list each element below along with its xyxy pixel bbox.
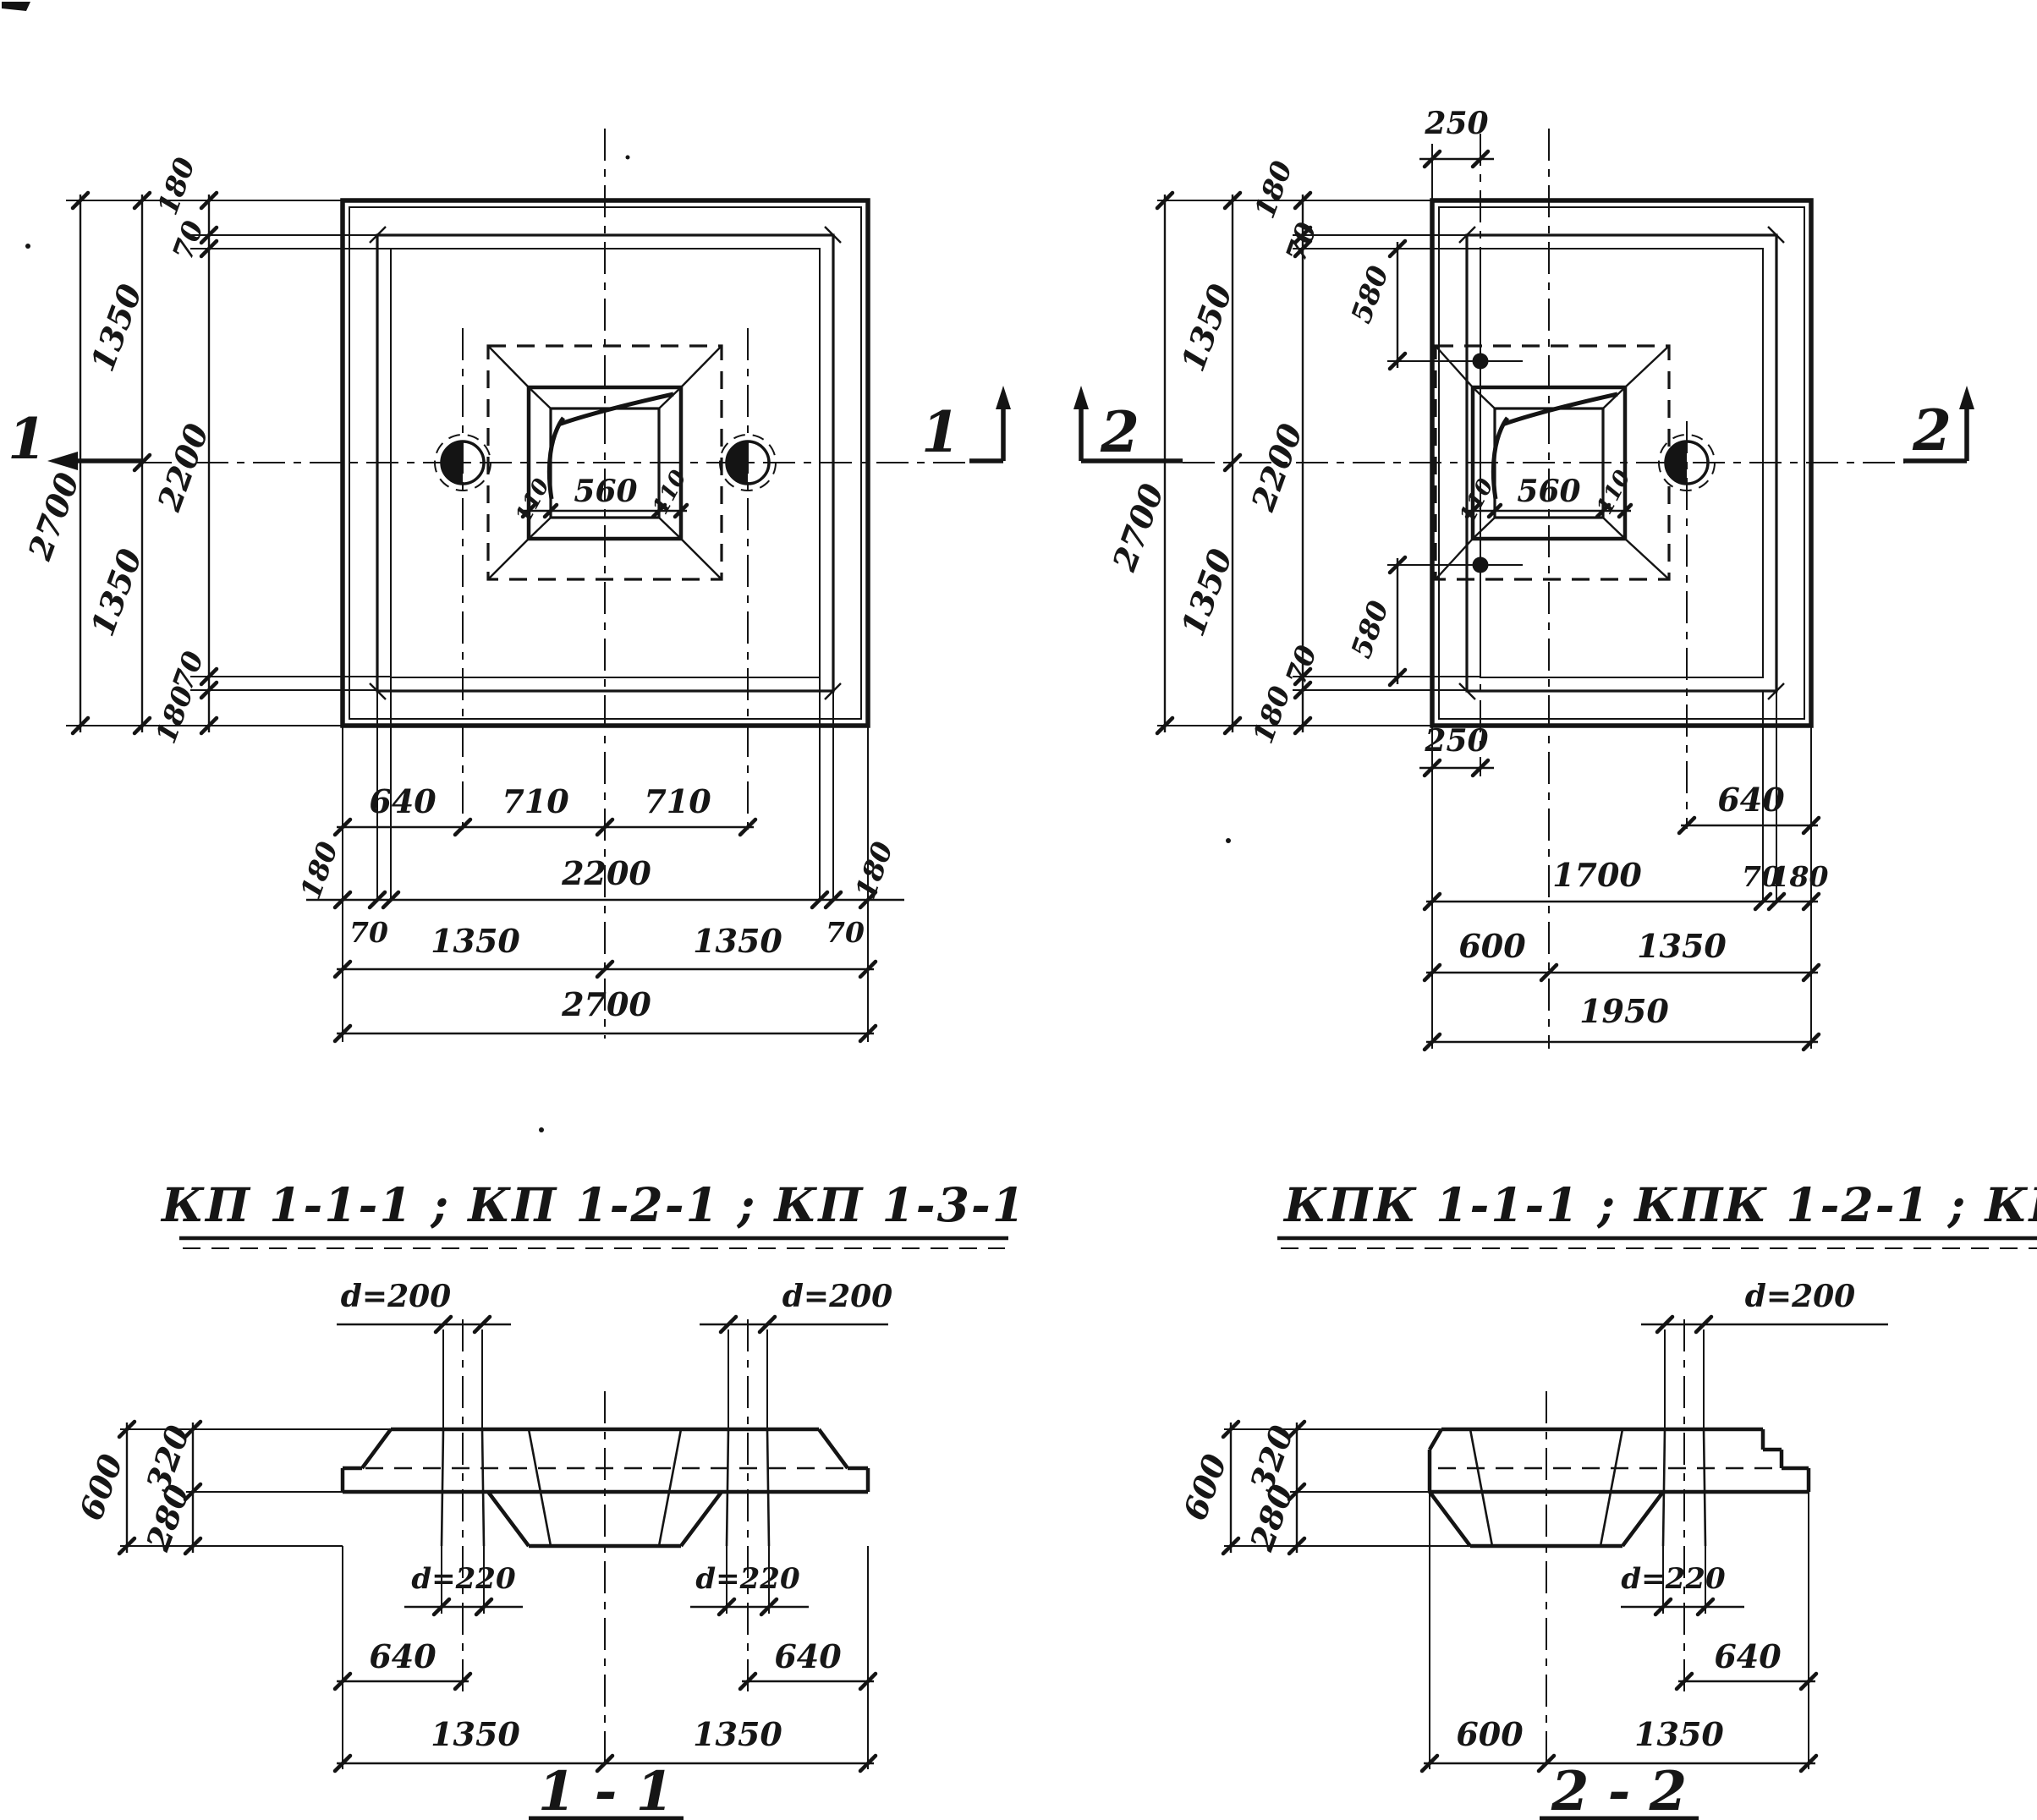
plan-right-dimension-ticks — [1157, 151, 1819, 1050]
section2-pocket-and-pipe — [1470, 1429, 1705, 1546]
dim-left-total-v: 2700 — [20, 467, 87, 565]
section-2-2: d=200 600 320 280 d=220 640 600 1350 2 -… — [1176, 1279, 1888, 1820]
dim-right-edge-top: 180 — [1248, 156, 1299, 222]
section1-640-right: 640 — [774, 1637, 842, 1675]
dim-left-h-total: 2700 — [561, 985, 651, 1023]
dim-right-1950: 1950 — [1579, 992, 1669, 1030]
section1-d200-left: d=200 — [341, 1279, 451, 1314]
section1-ticks — [119, 1317, 876, 1771]
title-left: КП 1-1-1 ; КП 1-2-1 ; КП 1-3-1 — [160, 1177, 1026, 1232]
dim-left-h-edge-right: 180 — [848, 837, 899, 903]
corner-smudge — [2, 2, 30, 11]
dim-left-inner-v: 2200 — [150, 418, 217, 516]
section2-ticks — [1223, 1317, 1816, 1771]
section2-arrow-east — [1959, 386, 1974, 409]
dim-left-h-inner: 2200 — [561, 854, 651, 892]
plan-right-extension-lines — [1157, 144, 1811, 1049]
dim-left-h-step-right: 70 — [826, 916, 865, 949]
dim-left-h-half-right: 1350 — [693, 922, 782, 960]
section1-arrow-east — [996, 386, 1011, 409]
plan-right: 2 2 250 250 2700 1350 1350 2200 180 70 5… — [1073, 106, 1974, 1050]
section1-label-east: 1 — [921, 399, 960, 465]
dim-left-hole-offset: 640 — [369, 782, 436, 820]
section1-d220-left: d=220 — [411, 1562, 516, 1596]
dim-right-1350: 1350 — [1637, 927, 1727, 965]
section1-280: 280 — [138, 1479, 197, 1556]
section2-extension-lines — [1224, 1329, 1809, 1769]
section2-600b: 600 — [1456, 1715, 1524, 1753]
dim-right-inner-v: 2200 — [1244, 418, 1310, 516]
dim-left-710a: 710 — [502, 782, 569, 820]
section2-label-east: 2 — [1912, 397, 1952, 463]
section2-d220: d=220 — [1621, 1562, 1726, 1596]
dim-left-h-step-left: 70 — [349, 916, 388, 949]
section1-extension-lines — [120, 1329, 868, 1769]
dim-left-half-bottom: 1350 — [83, 543, 150, 640]
dim-right-edge-bottom: 180 — [1246, 682, 1297, 748]
plan-left-dimension-lines — [80, 195, 904, 1033]
dim-right-hole-offset: 640 — [1717, 781, 1785, 819]
dim-right-h-180: 180 — [1771, 860, 1829, 893]
section2-title: 2 - 2 — [1551, 1760, 1687, 1820]
dim-right-step-top: 70 — [1279, 218, 1323, 266]
section1-d220-right: d=220 — [695, 1562, 800, 1596]
title-right: КПК 1-1-1 ; КПК 1-2-1 ; КПК 1-3-1 — [1282, 1177, 2037, 1232]
ink-speck — [539, 1127, 544, 1132]
dim-right-step-bottom: 70 — [1279, 641, 1323, 689]
dim-left-710b: 710 — [644, 782, 711, 820]
section1-axes — [463, 1319, 748, 1768]
ink-speck — [626, 156, 630, 160]
dim-right-580-top: 580 — [1344, 261, 1395, 327]
dim-right-580-bottom: 580 — [1344, 596, 1395, 662]
section1-1350-left: 1350 — [431, 1715, 520, 1753]
section1-label-west: 1 — [8, 406, 47, 472]
hole-right-fill — [727, 441, 748, 484]
dim-left-half-top: 1350 — [83, 278, 150, 376]
hole-fill — [1666, 441, 1687, 484]
ink-speck — [25, 244, 30, 249]
section1-arrow-west — [47, 452, 78, 470]
titles: КП 1-1-1 ; КП 1-2-1 ; КП 1-3-1 КПК 1-1-1… — [160, 1177, 2037, 1248]
blueprint-page: 1 1 2700 1350 1350 2200 180 70 70 180 64… — [0, 0, 2037, 1820]
section1-640-left: 640 — [369, 1637, 436, 1675]
dim-right-total-v: 2700 — [1105, 478, 1172, 576]
dim-left-h-edge-left: 180 — [294, 837, 344, 903]
section2-280: 280 — [1242, 1479, 1301, 1556]
section2-label-west: 2 — [1100, 399, 1139, 465]
plan-right-dimension-lines — [1165, 159, 1818, 1042]
dim-right-250-bottom: 250 — [1424, 723, 1488, 759]
dim-left-step-top: 70 — [166, 217, 210, 265]
plan-left: 1 1 2700 1350 1350 2200 180 70 70 180 64… — [8, 129, 1011, 1042]
section1-mark-east-line — [969, 408, 1003, 461]
section2-arrow-west — [1073, 386, 1089, 409]
dim-right-1700: 1700 — [1552, 856, 1642, 894]
pocket-right-560: 560 — [1517, 474, 1580, 509]
dim-right-half-bottom: 1350 — [1173, 543, 1240, 640]
pocket-left-560: 560 — [574, 474, 637, 509]
dim-right-600: 600 — [1458, 927, 1526, 965]
section1-1350-right: 1350 — [693, 1715, 782, 1753]
section2-dimension-lines — [1231, 1324, 1888, 1763]
dim-left-edge-bottom: 180 — [149, 682, 200, 748]
section1-d200-right: d=200 — [782, 1279, 892, 1314]
plan-left-dimension-ticks — [73, 193, 876, 1041]
section1-dimension-lines — [127, 1324, 888, 1763]
dim-left-edge-top: 180 — [151, 153, 201, 219]
foundation-drawing: 1 1 2700 1350 1350 2200 180 70 70 180 64… — [0, 0, 2037, 1820]
hole-left-fill — [442, 441, 463, 484]
section2-600: 600 — [1176, 1449, 1235, 1525]
section2-1350: 1350 — [1634, 1715, 1724, 1753]
section2-d200: d=200 — [1745, 1279, 1855, 1314]
section1-title: 1 - 1 — [538, 1760, 673, 1820]
section1-600: 600 — [72, 1449, 131, 1525]
section2-640: 640 — [1714, 1637, 1782, 1675]
dim-left-h-half-left: 1350 — [431, 922, 520, 960]
dim-right-half-top: 1350 — [1173, 278, 1240, 376]
ink-speck — [1226, 838, 1231, 843]
dim-right-250-top: 250 — [1424, 106, 1488, 141]
section-1-1: d=200 d=200 600 320 280 d=220 d=220 640 … — [72, 1279, 893, 1820]
